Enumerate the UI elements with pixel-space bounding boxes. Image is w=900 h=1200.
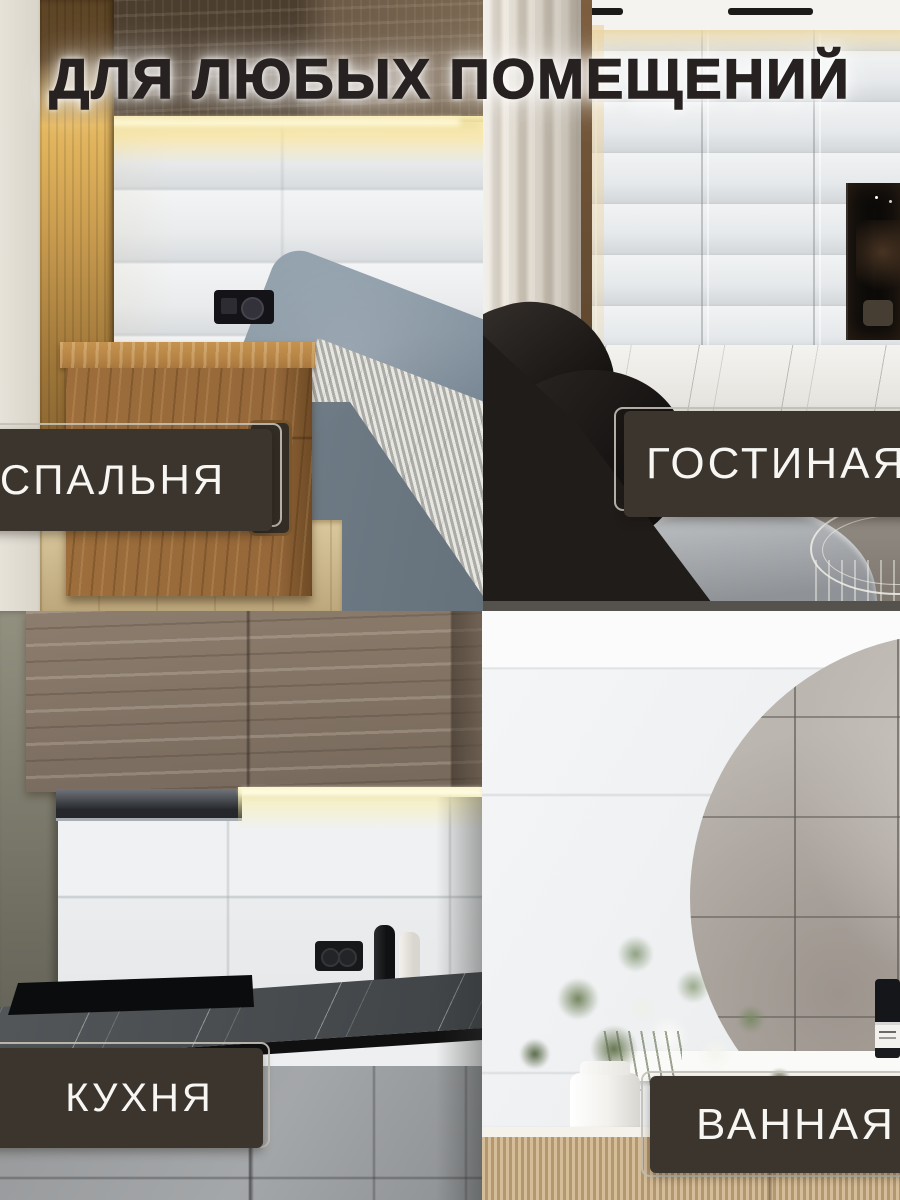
soap-dispenser-base [875, 1048, 900, 1058]
wall-socket [315, 941, 363, 971]
living-room-label: ГОСТИНАЯ [624, 411, 900, 517]
range-hood [56, 789, 242, 821]
led-strip [240, 788, 482, 795]
glass-table-legs [815, 560, 900, 606]
ceiling-light-slot [728, 8, 813, 15]
wall-socket [214, 290, 274, 324]
floor-shadow [483, 601, 900, 611]
tv-reflection-pillow [863, 300, 893, 326]
kitchen-label: КУХНЯ [0, 1048, 263, 1148]
led-strip [80, 118, 460, 126]
soap-dispenser-label [875, 1022, 900, 1048]
bathroom-label: ВАННАЯ [650, 1076, 900, 1173]
tv-reflection [856, 220, 900, 300]
promo-collage: ДЛЯ ЛЮБЫХ ПОМЕЩЕНИЙ СПАЛЬНЯ ГОСТИНАЯ КУХ… [0, 0, 900, 1200]
bedroom-label: СПАЛЬНЯ [0, 429, 272, 531]
corner-shadow [436, 797, 482, 1200]
page-title: ДЛЯ ЛЮБЫХ ПОМЕЩЕНИЙ [0, 46, 900, 111]
upper-cabinets [26, 611, 482, 792]
nightstand-top [60, 342, 315, 368]
soap-dispenser [875, 979, 900, 1022]
tv-reflection-lights [875, 196, 878, 199]
